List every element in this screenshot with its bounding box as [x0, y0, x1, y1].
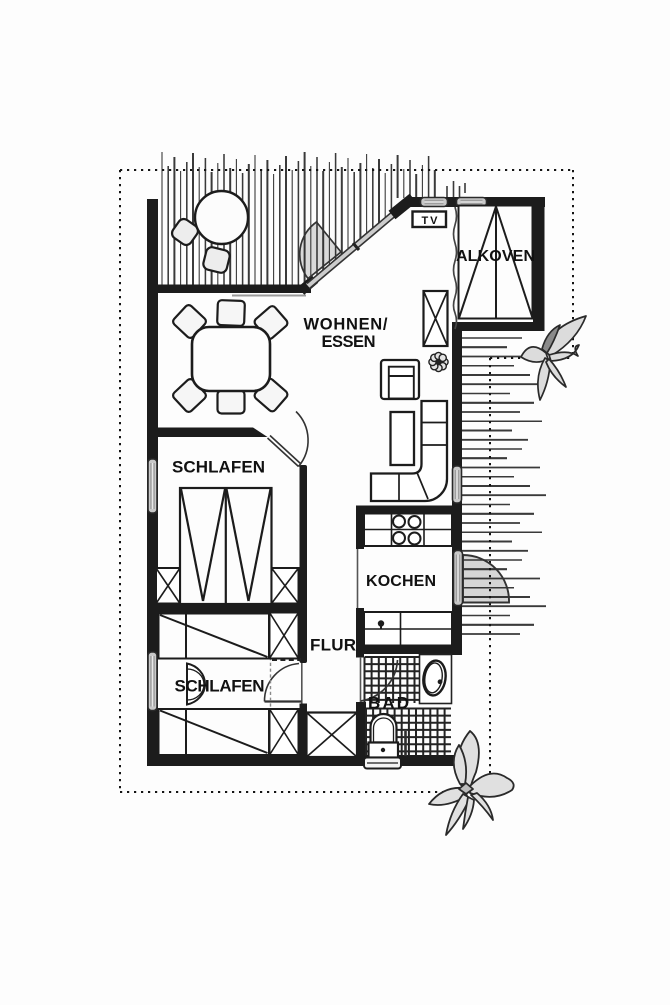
svg-text:TV: TV	[422, 215, 439, 227]
svg-text:SCHLAFEN: SCHLAFEN	[172, 458, 265, 477]
svg-text:SCHLAFEN: SCHLAFEN	[175, 677, 265, 696]
svg-text:KOCHEN: KOCHEN	[366, 573, 436, 590]
svg-text:ALKOVEN: ALKOVEN	[456, 248, 535, 265]
svg-text:WOHNEN/: WOHNEN/	[304, 316, 388, 334]
svg-text:FLUR: FLUR	[310, 636, 356, 655]
svg-text:BAD: BAD	[368, 694, 409, 713]
svg-text:ESSEN: ESSEN	[322, 333, 376, 351]
